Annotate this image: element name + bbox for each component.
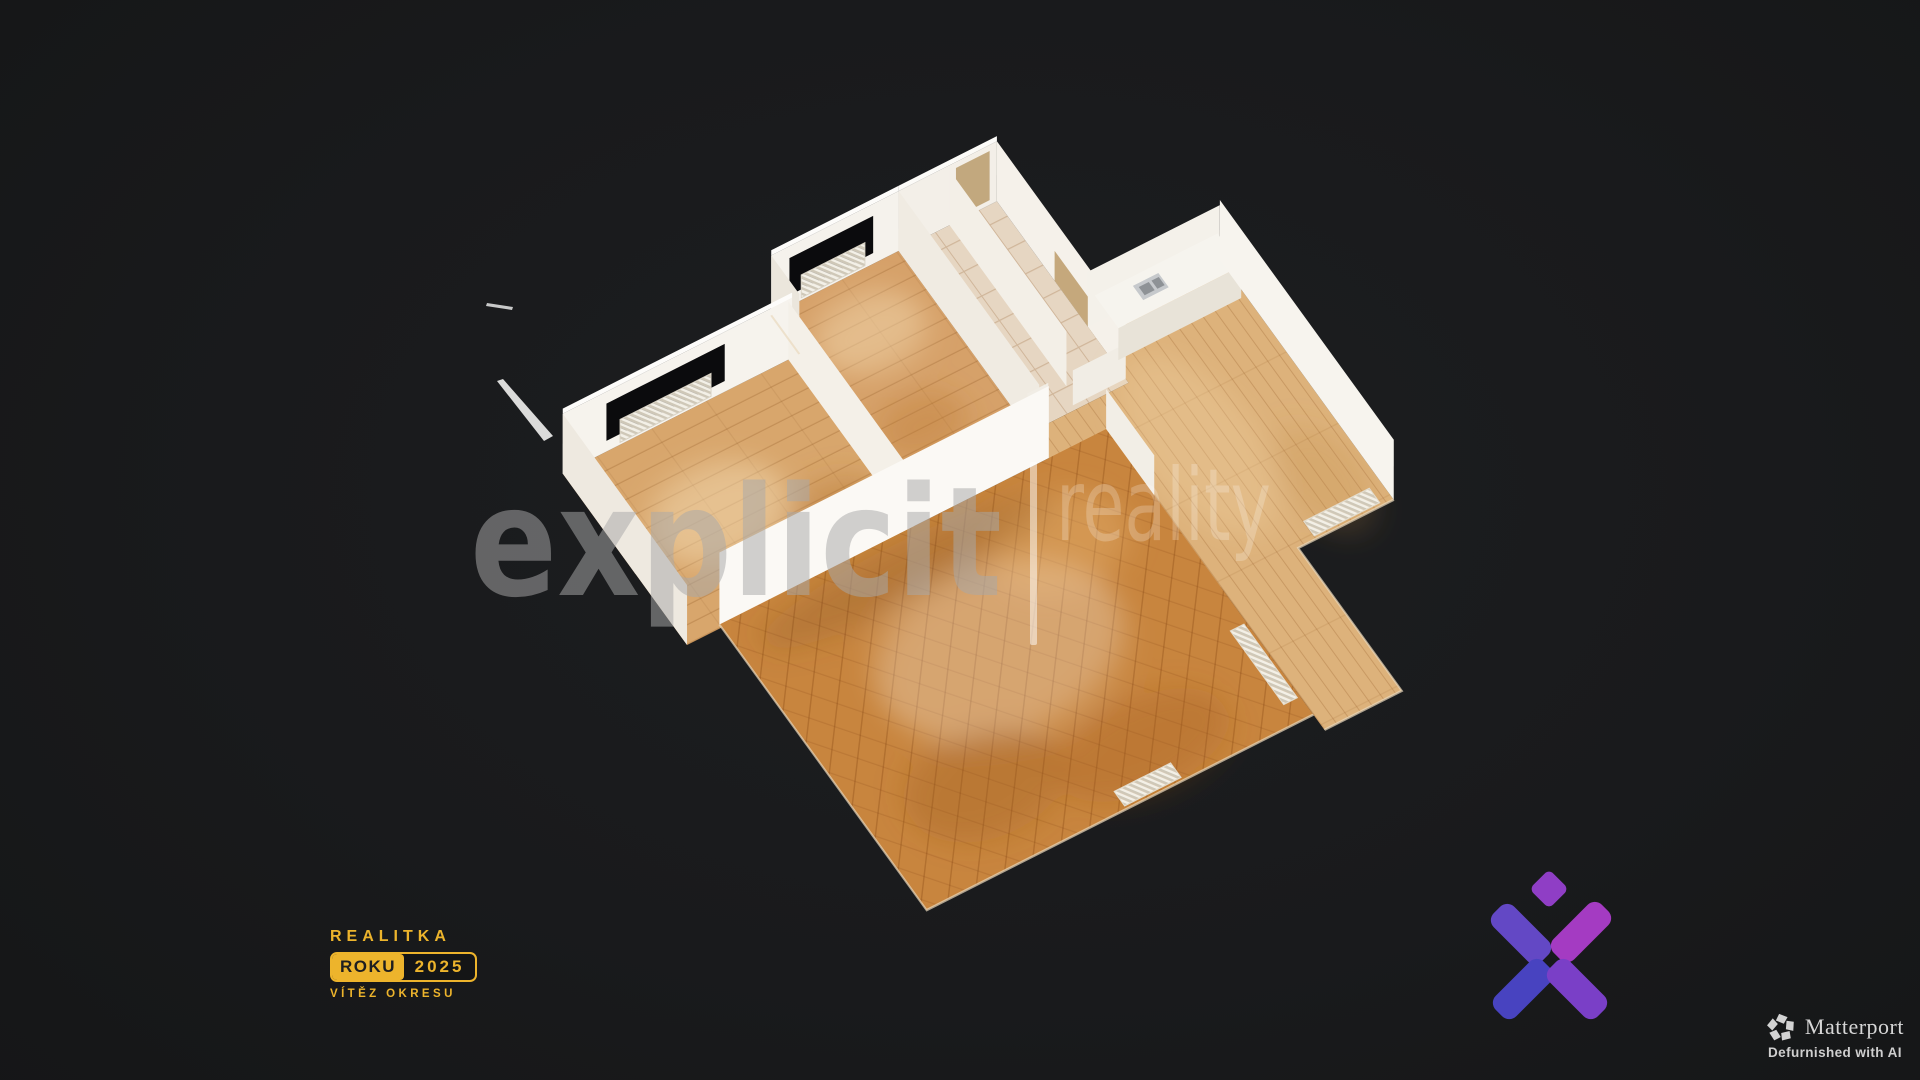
matterport-attribution: Matterport Defurnished with AI	[1766, 1012, 1904, 1060]
scan-artifacts	[486, 303, 553, 441]
award-badge-line1: REALITKA	[330, 928, 480, 946]
viewer-3d-canvas[interactable]: explicit reality	[0, 0, 1920, 1080]
matterport-brand-name: Matterport	[1805, 1014, 1904, 1040]
x-logo-arm-top-left	[1487, 900, 1556, 969]
award-badge-line3: VÍTĚZ OKRESU	[330, 988, 480, 1000]
award-badge-box: ROKU 2025	[330, 952, 477, 982]
x-logo-arm-bottom-left	[1489, 955, 1558, 1024]
x-logo-diamond	[1529, 869, 1569, 909]
award-badge-year: 2025	[404, 954, 475, 980]
award-badge: REALITKA ROKU 2025 VÍTĚZ OKRESU	[330, 928, 480, 1000]
explicit-x-logo-icon	[1478, 855, 1628, 1040]
screenshot-root: explicit reality REALITKA ROKU 2025 VÍTĚ…	[0, 0, 1920, 1080]
award-badge-roku: ROKU	[332, 954, 404, 980]
watermark-separator-bar	[1030, 462, 1037, 645]
x-logo-arm-bottom-right	[1543, 955, 1612, 1024]
watermark-brand: explicit	[470, 454, 1002, 631]
matterport-tagline: Defurnished with AI	[1766, 1045, 1904, 1060]
watermark-suffix: reality	[1056, 447, 1271, 564]
matterport-logo-icon	[1766, 1012, 1796, 1042]
x-logo-arm-top-right	[1547, 898, 1616, 967]
